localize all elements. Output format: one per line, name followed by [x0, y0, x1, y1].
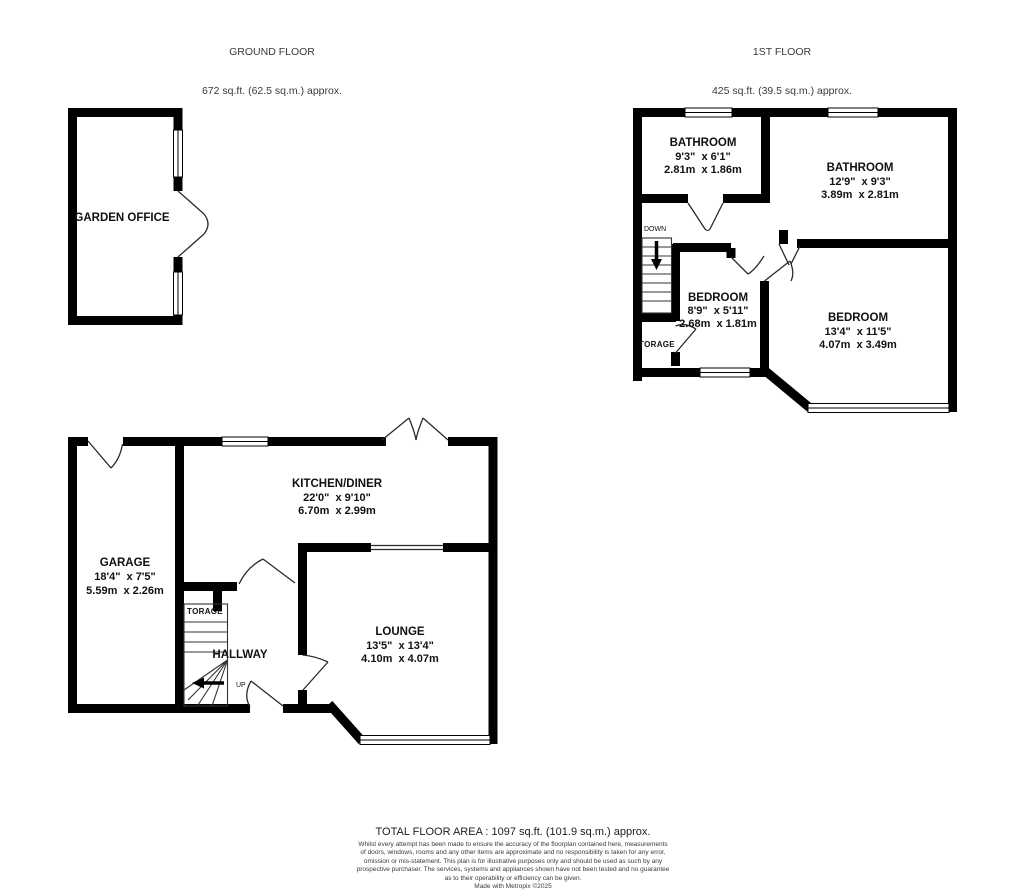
ground-floor-plan: GARDEN OFFICE: [68, 108, 497, 745]
room-dims-metric: 2.68m x 1.81m: [679, 318, 757, 330]
room-dims-imperial: 18'4" x 7'5": [94, 571, 156, 583]
door-swing: [688, 203, 723, 231]
room-dims-metric: 2.81m x 1.86m: [664, 164, 742, 176]
room-name-label: BATHROOM: [827, 162, 894, 174]
disclaimer-line: prospective purchaser. The services, sys…: [283, 866, 743, 874]
window: [685, 108, 732, 117]
first-floor-plan: DOWN TORAGE BATHROOM 9'3" x 6'1" 2.81m x…: [633, 108, 957, 413]
room-dims-metric: 4.07m x 3.49m: [819, 339, 897, 351]
credit-line: Made with Metropix ©2025: [283, 883, 743, 891]
bay-window: [360, 736, 490, 745]
footer: TOTAL FLOOR AREA : 1097 sq.ft. (101.9 sq…: [283, 826, 743, 891]
window: [174, 130, 183, 177]
disclaimer-line: omission or mis-statement. This plan is …: [283, 858, 743, 866]
room-name-label: LOUNGE: [375, 626, 425, 638]
door-swing: [247, 681, 283, 707]
disclaimer-line: of doors, windows, rooms and any other i…: [283, 849, 743, 857]
room-dims-metric: 6.70m x 2.99m: [298, 505, 376, 517]
up-label: UP: [236, 682, 246, 689]
storage-label: TORAGE: [187, 607, 223, 616]
room-dims-imperial: 13'4" x 11'5": [824, 326, 891, 338]
room-dims-metric: 3.89m x 2.81m: [821, 189, 899, 201]
room-name-label: BEDROOM: [828, 312, 888, 324]
disclaimer-line: Whilst every attempt has been made to en…: [283, 841, 743, 849]
room-name-label: BEDROOM: [688, 292, 748, 304]
room-name-label: BATHROOM: [670, 137, 737, 149]
total-floor-area: TOTAL FLOOR AREA : 1097 sq.ft. (101.9 sq…: [283, 826, 743, 838]
door-swing: [239, 559, 295, 584]
room-name-label: GARDEN OFFICE: [74, 212, 170, 224]
room-dims-imperial: 13'5" x 13'4": [366, 640, 434, 652]
door-swing: [88, 441, 123, 468]
room-dims-imperial: 12'9" x 9'3": [829, 176, 891, 188]
room-dims-imperial: 22'0" x 9'10": [303, 492, 371, 504]
door-swing: [731, 256, 764, 274]
floorplan-canvas: GARDEN OFFICE: [0, 0, 1024, 893]
door-swing: [303, 655, 329, 690]
window: [222, 437, 268, 446]
double-door-swing: [178, 191, 208, 257]
room-dims-metric: 4.10m x 4.07m: [361, 653, 439, 665]
stair-treads: [184, 622, 228, 652]
disclaimer-line: as to their operability or efficiency ca…: [283, 875, 743, 883]
room-name-label: GARAGE: [100, 557, 151, 569]
room-name-label: HALLWAY: [212, 649, 267, 661]
window: [174, 272, 183, 315]
down-label: DOWN: [644, 226, 666, 233]
window: [828, 108, 878, 117]
room-dims-imperial: 9'3" x 6'1": [675, 151, 730, 163]
storage-label: TORAGE: [639, 340, 675, 349]
staircase: [642, 238, 672, 313]
window: [700, 368, 750, 377]
french-door-swing: [382, 418, 448, 440]
room-dims-metric: 5.59m x 2.26m: [86, 585, 164, 597]
garden-office-outline: GARDEN OFFICE: [68, 108, 208, 325]
wall-opening: [371, 546, 443, 550]
room-dims-imperial: 8'9" x 5'11": [688, 305, 749, 317]
bay-window: [808, 404, 949, 413]
disclaimer: Whilst every attempt has been made to en…: [283, 841, 743, 891]
floorplan-page: GROUND FLOOR 672 sq.ft. (62.5 sq.m.) app…: [0, 0, 1024, 893]
room-name-label: KITCHEN/DINER: [292, 478, 383, 490]
up-arrow-head-icon: [192, 678, 204, 689]
